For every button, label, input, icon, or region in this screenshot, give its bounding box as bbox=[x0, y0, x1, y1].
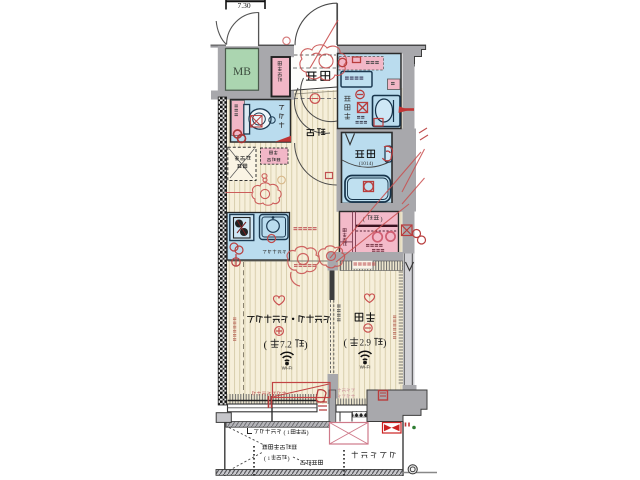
svg-text:(: ( bbox=[264, 339, 268, 351]
svg-text:MB: MB bbox=[233, 66, 251, 78]
svg-text:(: ( bbox=[264, 456, 266, 463]
svg-text:): ) bbox=[304, 339, 308, 351]
svg-text:): ) bbox=[307, 430, 309, 437]
svg-text:): ) bbox=[380, 216, 382, 223]
svg-text:): ) bbox=[288, 456, 290, 463]
svg-text:7.30: 7.30 bbox=[238, 1, 251, 10]
svg-text:Wi-Fi: Wi-Fi bbox=[282, 366, 293, 371]
svg-text:Wi-Fi: Wi-Fi bbox=[360, 365, 371, 370]
svg-text:): ) bbox=[383, 338, 387, 349]
svg-text:(: ( bbox=[344, 338, 348, 349]
svg-text:7.2: 7.2 bbox=[280, 341, 292, 351]
svg-text:1: 1 bbox=[287, 430, 290, 436]
svg-text:2.9: 2.9 bbox=[360, 338, 372, 348]
svg-text:1: 1 bbox=[268, 456, 271, 462]
svg-text:(1014): (1014) bbox=[359, 160, 374, 167]
svg-text:(: ( bbox=[284, 430, 286, 437]
